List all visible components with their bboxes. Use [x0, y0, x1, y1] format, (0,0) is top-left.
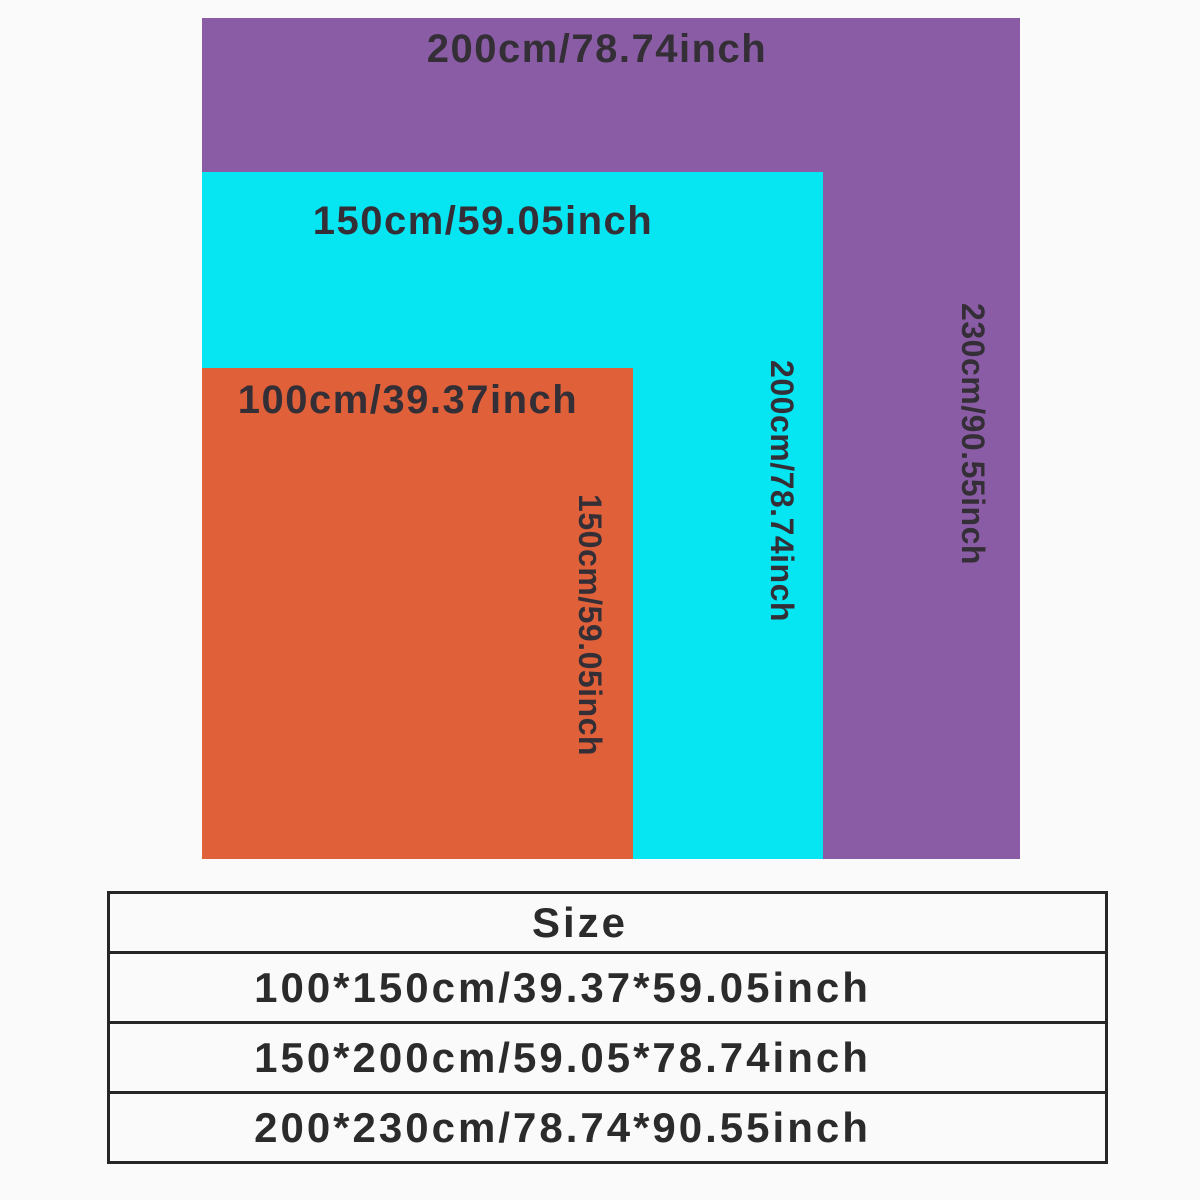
orange-width-label: 100cm/39.37inch	[238, 379, 579, 421]
size-table-row-100x150: 100*150cm/39.37*59.05inch	[110, 951, 1105, 1021]
size-table-header: Size	[110, 894, 1105, 951]
size-table-row-150x200: 150*200cm/59.05*78.74inch	[110, 1021, 1105, 1091]
cyan-width-label: 150cm/59.05inch	[313, 200, 654, 242]
size-table-row-200x230: 200*230cm/78.74*90.55inch	[110, 1091, 1105, 1161]
size-chart-diagram: 200cm/78.74inch 150cm/59.05inch 100cm/39…	[0, 0, 1200, 1200]
orange-height-label: 150cm/59.05inch	[572, 494, 606, 756]
size-table: Size 100*150cm/39.37*59.05inch 150*200cm…	[107, 891, 1108, 1164]
cyan-height-label: 200cm/78.74inch	[764, 360, 798, 622]
purple-height-label: 230cm/90.55inch	[955, 303, 989, 565]
purple-width-label: 200cm/78.74inch	[427, 28, 768, 70]
rectangle-100x150cm	[202, 368, 633, 859]
